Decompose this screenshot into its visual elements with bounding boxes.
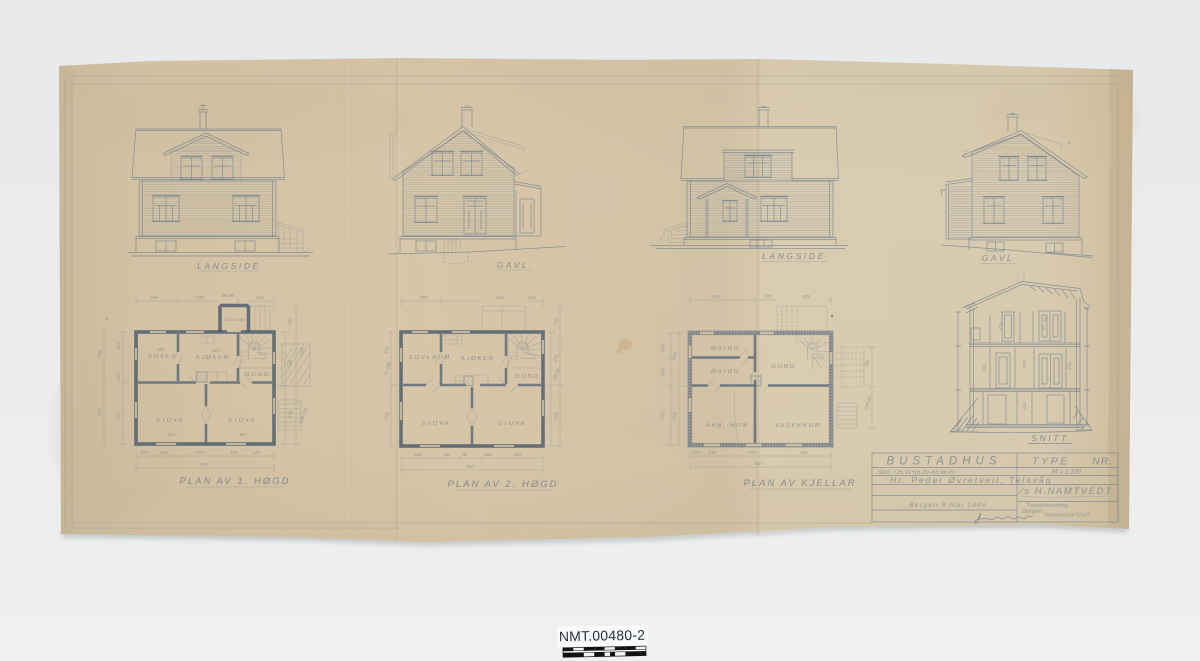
- svg-text:343: 343: [528, 295, 536, 300]
- svg-text:NR.: NR.: [1092, 456, 1113, 468]
- svg-text:310: 310: [414, 452, 422, 457]
- svg-text:150: 150: [496, 295, 504, 300]
- svg-text:PLAN AV 2. HØGD: PLAN AV 2. HØGD: [448, 479, 559, 490]
- svg-text:BUSTADHUS: BUSTADHUS: [886, 456, 1001, 468]
- svg-text:⁄​s H.NAMTVEDT: ⁄​s H.NAMTVEDT: [1018, 486, 1113, 497]
- svg-text:SOVER: SOVER: [148, 354, 177, 360]
- svg-text:124: 124: [692, 450, 700, 455]
- svg-text:TYPE: TYPE: [1032, 456, 1070, 468]
- svg-text:ARB.-ROM: ARB.-ROM: [705, 423, 749, 429]
- svg-text:910: 910: [200, 462, 208, 467]
- svg-text:310: 310: [212, 348, 220, 353]
- svg-text:SNITT: SNITT: [1031, 433, 1069, 443]
- svg-text:KJØKEN: KJØKEN: [461, 356, 495, 362]
- svg-text:GONG: GONG: [515, 374, 540, 380]
- svg-text:220: 220: [1022, 402, 1027, 411]
- svg-text:STOVA: STOVA: [228, 418, 256, 424]
- svg-text:248: 248: [149, 295, 158, 300]
- svg-text:MATBU: MATBU: [711, 369, 740, 375]
- svg-text:433: 433: [167, 432, 175, 437]
- svg-text:130: 130: [708, 450, 716, 455]
- svg-text:100: 100: [443, 452, 451, 457]
- svg-text:STOVA: STOVA: [498, 421, 526, 427]
- svg-text:90: 90: [462, 452, 468, 457]
- svg-text:240: 240: [1022, 360, 1027, 369]
- svg-text:GAVL: GAVL: [982, 253, 1015, 263]
- svg-text:165: 165: [160, 450, 168, 455]
- svg-text:120: 120: [140, 450, 148, 455]
- svg-text:Hr. Peder Øvretveit, Telavåg: Hr. Peder Øvretveit, Telavåg: [890, 475, 1053, 485]
- svg-text:100: 100: [196, 295, 204, 300]
- svg-text:370: 370: [196, 450, 204, 455]
- svg-text:2.15×1.96: 2.15×1.96: [223, 317, 245, 322]
- svg-text:M = 1:100: M = 1:100: [1052, 469, 1081, 476]
- svg-text:Bergen: Bergen: [1022, 508, 1043, 515]
- svg-text:PLAN AV 1. HØGD: PLAN AV 1. HØGD: [180, 476, 291, 487]
- svg-text:393: 393: [420, 295, 428, 300]
- svg-text:STOVA: STOVA: [422, 421, 450, 427]
- svg-text:265: 265: [156, 347, 165, 352]
- svg-text:910: 910: [466, 464, 474, 469]
- svg-text:STOVA: STOVA: [156, 418, 184, 424]
- svg-text:LANGSIDE: LANGSIDE: [197, 261, 261, 271]
- svg-text:KJØKEN: KJØKEN: [196, 355, 230, 361]
- svg-text:437: 437: [239, 432, 247, 437]
- svg-text:PLAN AV KJELLAR: PLAN AV KJELLAR: [743, 478, 856, 489]
- svg-text:910: 910: [754, 461, 762, 466]
- svg-text:. Bergen 9 mai 1946: . Bergen 9 mai 1946: [903, 502, 987, 509]
- svg-text:100: 100: [764, 294, 772, 299]
- svg-text:100: 100: [484, 452, 492, 457]
- svg-text:120: 120: [252, 450, 260, 455]
- svg-text:180: 180: [230, 450, 238, 455]
- svg-text:NMT.00480-2: NMT.00480-2: [559, 627, 646, 645]
- svg-text:MATBU: MATBU: [711, 346, 740, 352]
- svg-text:SOVEROM: SOVEROM: [409, 355, 451, 361]
- svg-text:433: 433: [802, 294, 810, 299]
- svg-text:415: 415: [712, 294, 720, 299]
- svg-text:GAVL: GAVL: [497, 260, 530, 270]
- svg-text:370: 370: [748, 450, 756, 455]
- svg-text:Telefonsentral 17647: Telefonsentral 17647: [1043, 513, 1090, 519]
- svg-text:LANGSIDE: LANGSIDE: [762, 251, 826, 261]
- svg-text:VASKEROM: VASKEROM: [775, 423, 821, 429]
- svg-text:GONG: GONG: [245, 372, 270, 378]
- svg-text:165: 165: [256, 295, 264, 300]
- svg-text:90 98: 90 98: [222, 293, 234, 298]
- svg-text:310: 310: [514, 452, 522, 457]
- svg-text:180: 180: [800, 450, 808, 455]
- svg-text:GONG: GONG: [771, 364, 796, 370]
